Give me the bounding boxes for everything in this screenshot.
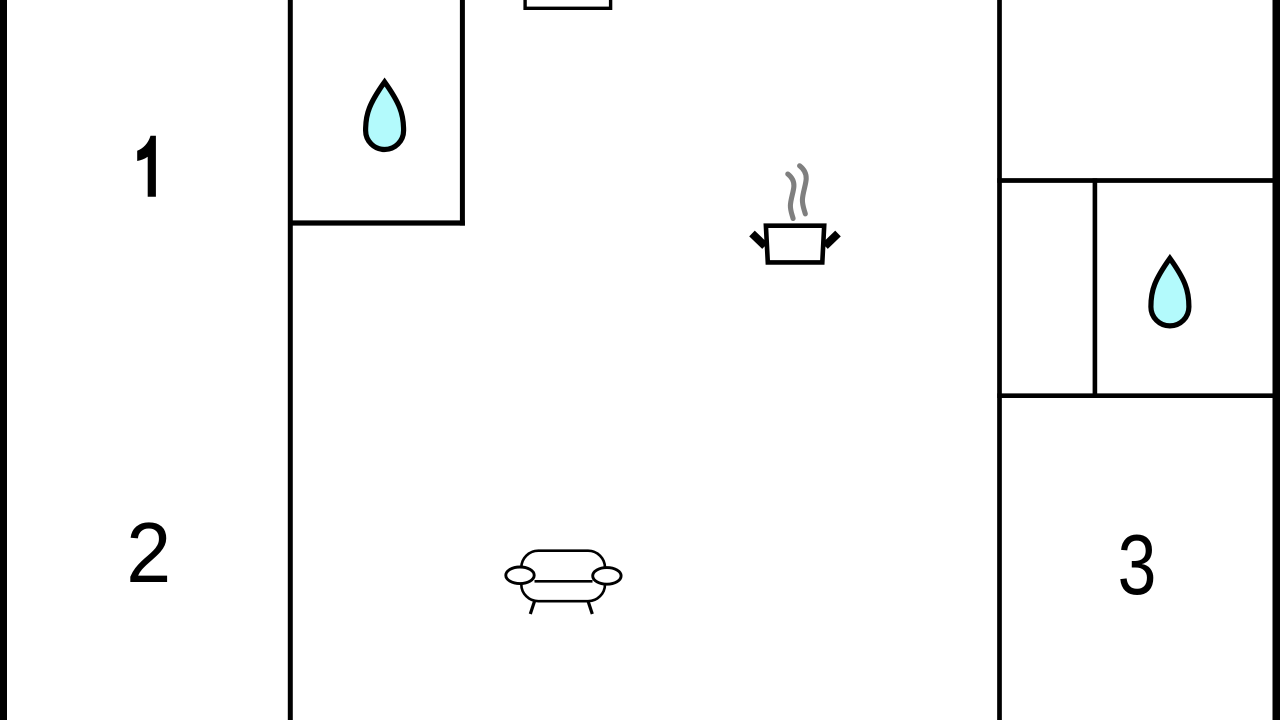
svg-text:3: 3 bbox=[1118, 519, 1157, 613]
svg-text:2: 2 bbox=[126, 505, 171, 600]
